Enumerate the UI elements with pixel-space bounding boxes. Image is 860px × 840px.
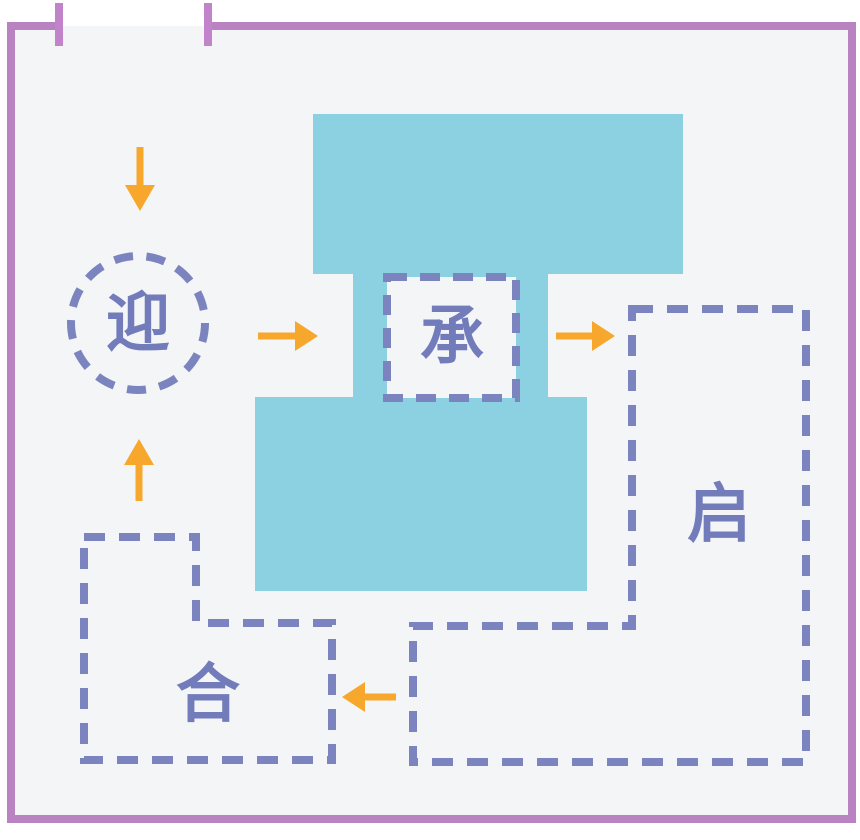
node-welcome-label: 迎 (78, 263, 198, 383)
node-open-label: 启 (659, 454, 779, 574)
wall-bottom (7, 815, 856, 823)
door-jamb-left (55, 3, 63, 46)
wall-left (7, 22, 15, 823)
building-mass-bottom-bar (255, 397, 587, 591)
door-jamb-right (204, 3, 212, 46)
diagram-canvas: 迎 承 启 合 (0, 0, 860, 840)
wall-top-right-segment (211, 22, 856, 30)
node-receive-label: 承 (392, 276, 512, 396)
wall-right (848, 22, 856, 823)
building-mass-top-bar (313, 114, 683, 274)
node-unite-label: 合 (148, 634, 268, 754)
